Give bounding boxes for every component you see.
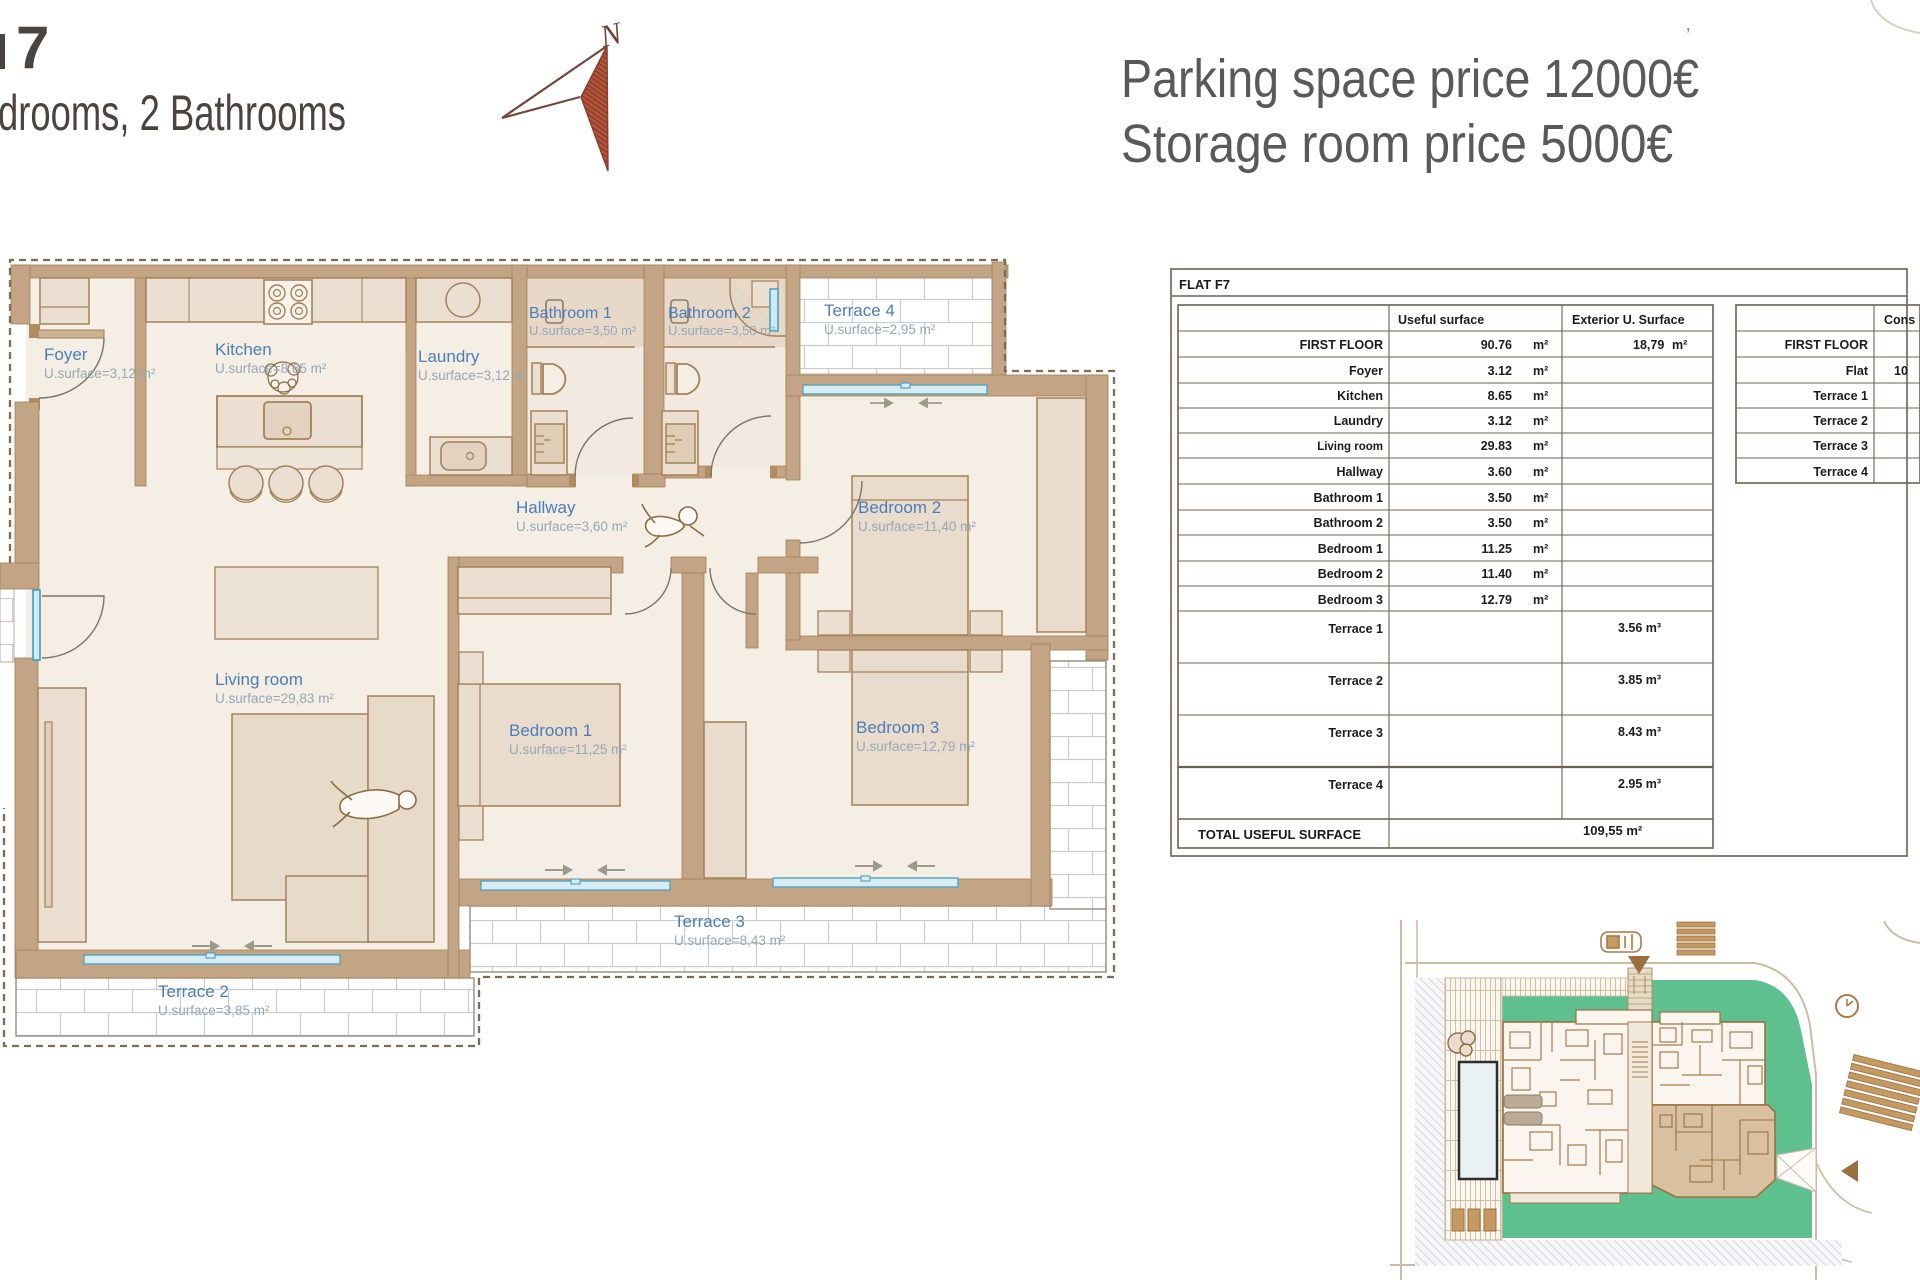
svg-text:Foyer: Foyer xyxy=(1349,364,1383,378)
svg-text:FIRST FLOOR: FIRST FLOOR xyxy=(1300,338,1383,352)
svg-text:Bedroom 3: Bedroom 3 xyxy=(1318,593,1383,607)
svg-text:U.surface=29,83 m²: U.surface=29,83 m² xyxy=(215,691,334,706)
svg-text:Storage room price 5000€: Storage room price 5000€ xyxy=(1121,114,1673,174)
svg-text:m²: m² xyxy=(1533,439,1548,453)
svg-text:Terrace 4: Terrace 4 xyxy=(1328,778,1383,792)
svg-text:m²: m² xyxy=(1533,593,1548,607)
svg-text:’: ’ xyxy=(1686,25,1690,47)
svg-text:3.12: 3.12 xyxy=(1488,414,1512,428)
svg-text:m²: m² xyxy=(1533,389,1548,403)
svg-text:3.60: 3.60 xyxy=(1488,465,1512,479)
svg-text:U.surface=8,65 m²: U.surface=8,65 m² xyxy=(215,361,327,376)
svg-text:29.83: 29.83 xyxy=(1481,439,1512,453)
svg-text:Parking space price 12000€: Parking space price 12000€ xyxy=(1121,49,1699,109)
svg-text:U.surface=3,50 m²: U.surface=3,50 m² xyxy=(529,323,637,338)
svg-text:Bedroom 3: Bedroom 3 xyxy=(856,718,939,737)
svg-text:U.surface=3,50 m²: U.surface=3,50 m² xyxy=(668,323,776,338)
svg-text:Terrace 3: Terrace 3 xyxy=(1813,439,1868,453)
svg-text:Bathroom 2: Bathroom 2 xyxy=(668,305,751,322)
svg-text:Useful surface: Useful surface xyxy=(1398,313,1484,327)
svg-text:TOTAL USEFUL SURFACE: TOTAL USEFUL SURFACE xyxy=(1198,827,1361,842)
svg-text:Hallway: Hallway xyxy=(1336,465,1383,479)
svg-text:m²: m² xyxy=(1533,491,1548,505)
svg-text:Bedroom 2: Bedroom 2 xyxy=(858,498,941,517)
svg-text:Exterior U. Surface: Exterior U. Surface xyxy=(1572,313,1685,327)
svg-text:U.surface=3,12 m²: U.surface=3,12 m² xyxy=(44,366,156,381)
svg-text:2.95 m³: 2.95 m³ xyxy=(1618,777,1661,791)
svg-text:U.surface=3,85 m²: U.surface=3,85 m² xyxy=(158,1003,270,1018)
svg-text:Bathroom 2: Bathroom 2 xyxy=(1314,516,1384,530)
svg-text:U.surface=11,25 m²: U.surface=11,25 m² xyxy=(509,742,627,757)
svg-text:18,79: 18,79 xyxy=(1633,338,1664,352)
svg-text:Bedroom 2: Bedroom 2 xyxy=(1318,567,1383,581)
svg-text:Hallway: Hallway xyxy=(516,498,576,517)
svg-text:m²: m² xyxy=(1533,338,1548,352)
svg-text:90.76: 90.76 xyxy=(1481,338,1512,352)
svg-text:3.85 m³: 3.85 m³ xyxy=(1618,673,1661,687)
svg-text:Bathroom 1: Bathroom 1 xyxy=(529,305,612,322)
svg-text:10: 10 xyxy=(1894,364,1908,378)
svg-text:3.56 m³: 3.56 m³ xyxy=(1618,621,1661,635)
svg-text:Living room: Living room xyxy=(215,670,303,689)
svg-text:Terrace 1: Terrace 1 xyxy=(1328,622,1383,636)
svg-text:Bedroom 1: Bedroom 1 xyxy=(509,721,592,740)
svg-text:Terrace 1: Terrace 1 xyxy=(1813,389,1868,403)
svg-text:Cons: Cons xyxy=(1884,313,1915,327)
svg-text:Terrace 4: Terrace 4 xyxy=(1813,465,1868,479)
svg-text:Terrace 3: Terrace 3 xyxy=(674,912,745,931)
svg-text:Bedroom 1: Bedroom 1 xyxy=(1318,542,1383,556)
svg-text:3.50: 3.50 xyxy=(1488,491,1512,505)
svg-text:Terrace 2: Terrace 2 xyxy=(1328,674,1383,688)
svg-text:m²: m² xyxy=(1672,338,1687,352)
svg-text:FIRST FLOOR: FIRST FLOOR xyxy=(1785,338,1868,352)
svg-text:U.surface=11,40 m²: U.surface=11,40 m² xyxy=(858,519,976,534)
svg-text:Laundry: Laundry xyxy=(418,347,480,366)
svg-text:FLAT F7: FLAT F7 xyxy=(1179,277,1230,292)
svg-text:Bathroom 1: Bathroom 1 xyxy=(1314,491,1384,505)
svg-text:drooms, 2 Bathrooms: drooms, 2 Bathrooms xyxy=(0,85,346,141)
svg-text:m²: m² xyxy=(1533,364,1548,378)
svg-text:3.50: 3.50 xyxy=(1488,516,1512,530)
svg-text:m²: m² xyxy=(1533,465,1548,479)
svg-text:109,55 m²: 109,55 m² xyxy=(1583,823,1643,838)
svg-text:Terrace 4: Terrace 4 xyxy=(824,301,895,320)
svg-text:m²: m² xyxy=(1533,414,1548,428)
svg-text:7: 7 xyxy=(16,14,49,81)
svg-text:m²: m² xyxy=(1533,516,1548,530)
svg-text:U.surface=2,95 m²: U.surface=2,95 m² xyxy=(824,322,936,337)
svg-text:Flat: Flat xyxy=(1846,364,1869,378)
svg-text:12.79: 12.79 xyxy=(1481,593,1512,607)
svg-text:8.65: 8.65 xyxy=(1488,389,1512,403)
svg-text:Kitchen: Kitchen xyxy=(215,340,272,359)
svg-text:U.surface=3,12 m: U.surface=3,12 m xyxy=(418,368,525,383)
svg-text:Terrace 2: Terrace 2 xyxy=(158,982,229,1001)
svg-text:Foyer: Foyer xyxy=(44,345,88,364)
svg-text:U.surface=12,79 m²: U.surface=12,79 m² xyxy=(856,739,975,754)
svg-text:U.surface=8,43 m²: U.surface=8,43 m² xyxy=(674,933,786,948)
svg-text:Living room: Living room xyxy=(1317,441,1383,453)
svg-text:Terrace 3: Terrace 3 xyxy=(1328,726,1383,740)
svg-text:Terrace 2: Terrace 2 xyxy=(1813,414,1868,428)
svg-text:8.43 m³: 8.43 m³ xyxy=(1618,725,1661,739)
svg-text:m²: m² xyxy=(1533,542,1548,556)
svg-text:11.40: 11.40 xyxy=(1481,567,1512,581)
svg-text:3.12: 3.12 xyxy=(1488,364,1512,378)
svg-text:m²: m² xyxy=(1533,567,1548,581)
svg-text:Laundry: Laundry xyxy=(1334,414,1383,428)
svg-text:U.surface=3,60 m²: U.surface=3,60 m² xyxy=(516,519,628,534)
svg-text:11.25: 11.25 xyxy=(1481,542,1512,556)
svg-text:Kitchen: Kitchen xyxy=(1337,389,1383,403)
